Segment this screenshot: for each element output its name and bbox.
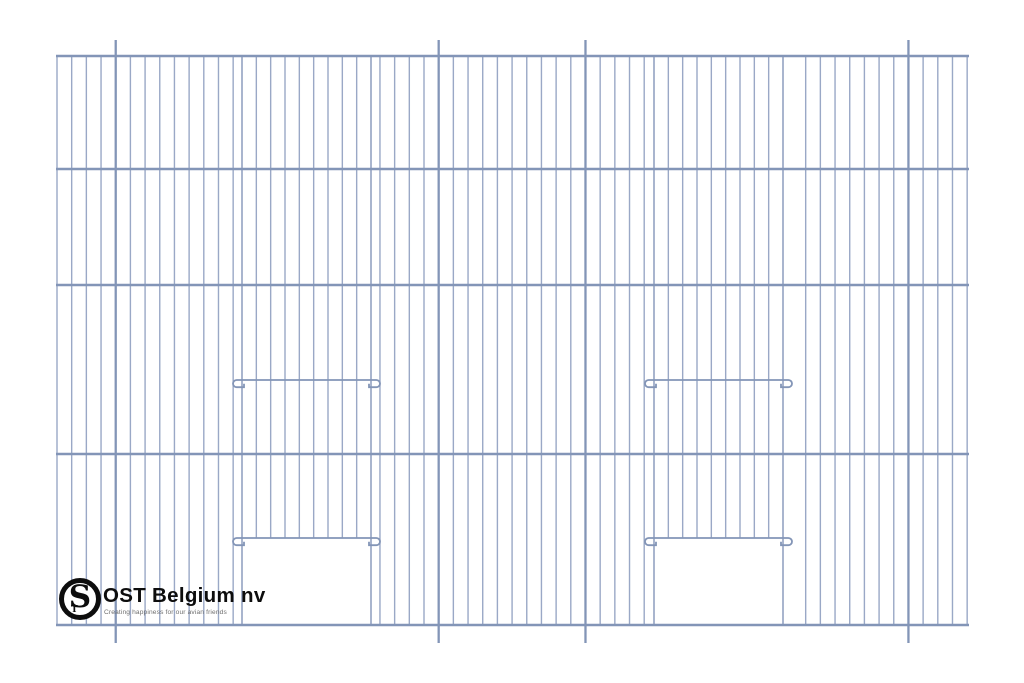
logo-monogram-s: S xyxy=(64,579,96,615)
brand-name: OST Belgium nv xyxy=(103,585,343,607)
right-door-lower-rail xyxy=(645,538,792,545)
logo-monogram-t: T xyxy=(71,605,78,615)
brand-text-block: OST Belgium nv Creating happiness for ou… xyxy=(103,578,343,616)
brand-tagline: Creating happiness for our avian friends xyxy=(104,609,343,616)
drawing-canvas: S T OST Belgium nv Creating happiness fo… xyxy=(0,0,1024,683)
left-door-upper-rail xyxy=(233,380,380,387)
ost-logo-icon: S T xyxy=(59,578,101,620)
brand-logo: S T OST Belgium nv Creating happiness fo… xyxy=(59,578,343,620)
left-door-lower-rail xyxy=(233,538,380,545)
right-door-upper-rail xyxy=(645,380,792,387)
